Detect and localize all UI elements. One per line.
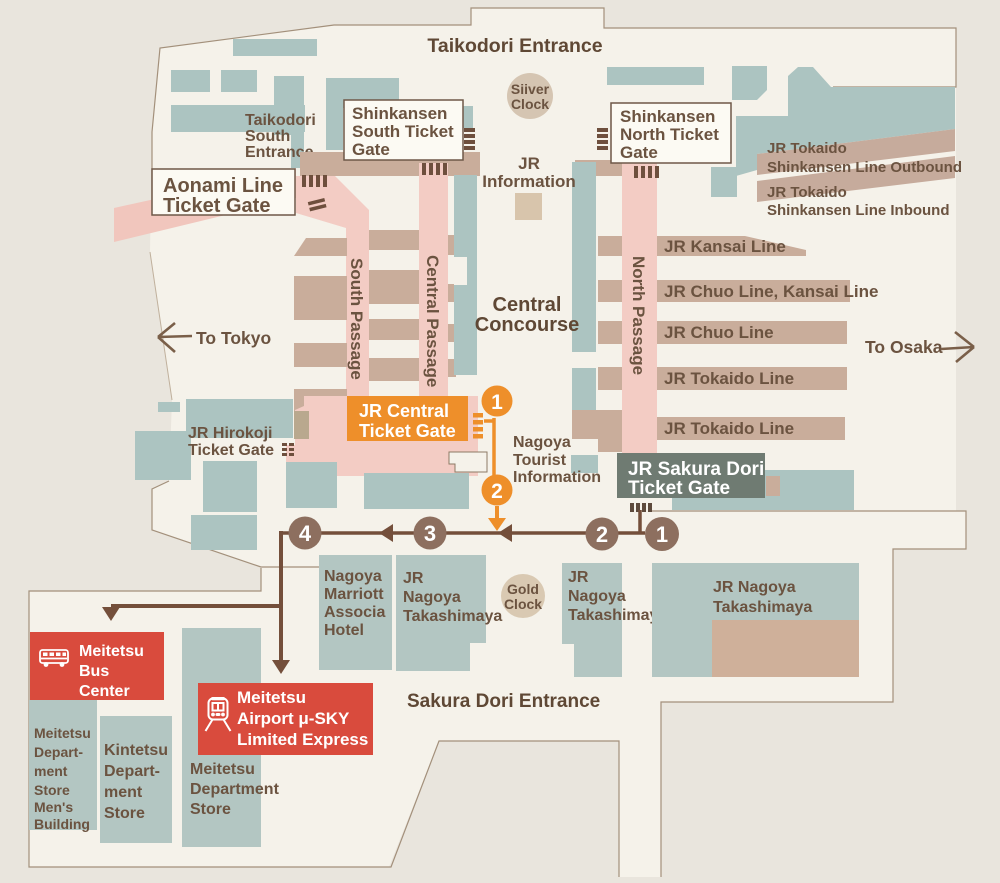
svg-text:Hotel: Hotel [324,622,364,639]
svg-text:Central: Central [493,294,562,316]
svg-text:Store: Store [34,782,70,798]
svg-text:North Ticket: North Ticket [620,125,719,144]
svg-text:Ticket Gate: Ticket Gate [628,478,730,499]
svg-text:Limited Express: Limited Express [237,730,368,749]
svg-text:Shinkansen: Shinkansen [352,104,447,123]
svg-text:Gold: Gold [507,581,539,597]
svg-text:Shinkansen Line Inbound: Shinkansen Line Inbound [767,202,950,219]
svg-text:JR Tokaido: JR Tokaido [767,184,847,201]
svg-text:Central Passage: Central Passage [423,255,442,387]
svg-text:Gate: Gate [352,140,390,159]
svg-text:Information: Information [513,469,601,486]
svg-text:Airport μ-SKY: Airport μ-SKY [237,709,350,728]
svg-text:JR Tokaido: JR Tokaido [767,140,847,157]
svg-text:Bus: Bus [79,663,109,680]
svg-text:JR: JR [403,570,424,587]
svg-text:Ticket Gate: Ticket Gate [163,195,270,217]
svg-text:Center: Center [79,683,130,700]
svg-text:JR Central: JR Central [359,401,449,421]
svg-text:JR Tokaido Line: JR Tokaido Line [664,419,794,438]
svg-text:Shinkansen Line Outbound: Shinkansen Line Outbound [767,159,962,176]
svg-text:JR Nagoya: JR Nagoya [713,579,796,596]
svg-text:Men's: Men's [34,799,73,815]
svg-text:Sakura Dori Entrance: Sakura Dori Entrance [407,691,600,712]
svg-text:Siiver: Siiver [511,81,550,97]
svg-text:Tourist: Tourist [513,452,567,469]
svg-text:Nagoya: Nagoya [513,434,571,451]
svg-text:Meitetsu: Meitetsu [237,688,306,707]
svg-text:JR Chuo Line: JR Chuo Line [664,323,774,342]
svg-text:To Osaka: To Osaka [865,337,943,357]
svg-text:Takashimaya: Takashimaya [403,608,502,625]
svg-text:2: 2 [491,480,503,503]
svg-text:ment: ment [34,763,68,779]
svg-text:Department: Department [190,781,280,798]
svg-text:1: 1 [491,391,503,414]
svg-text:To Tokyo: To Tokyo [196,328,271,348]
svg-text:Associa: Associa [324,604,385,621]
svg-text:Nagoya: Nagoya [324,568,382,585]
svg-text:Ticket Gate: Ticket Gate [188,442,274,459]
svg-text:Ticket Gate: Ticket Gate [359,421,456,441]
svg-text:South: South [245,128,290,145]
svg-text:JR Tokaido Line: JR Tokaido Line [664,369,794,388]
svg-text:Nagoya: Nagoya [568,588,626,605]
svg-text:Shinkansen: Shinkansen [620,107,715,126]
svg-text:North Passage: North Passage [629,256,648,375]
svg-text:JR: JR [518,154,540,173]
svg-text:Clock: Clock [504,596,542,612]
svg-text:JR Sakura Dori: JR Sakura Dori [628,459,764,480]
svg-text:Taikodori Entrance: Taikodori Entrance [427,35,602,57]
svg-text:South Passage: South Passage [347,258,366,380]
svg-text:Store: Store [190,801,231,818]
svg-text:Depart-: Depart- [104,763,160,780]
svg-text:JR Kansai Line: JR Kansai Line [664,237,786,256]
svg-text:Building: Building [34,816,90,832]
svg-text:Gate: Gate [620,143,658,162]
svg-text:Information: Information [482,172,576,191]
svg-text:Clock: Clock [511,96,549,112]
svg-text:3: 3 [424,521,436,546]
svg-text:Depart-: Depart- [34,744,83,760]
svg-text:South Ticket: South Ticket [352,122,454,141]
svg-text:Marriott: Marriott [324,586,384,603]
svg-text:Nagoya: Nagoya [403,589,461,606]
svg-text:Store: Store [104,805,145,822]
svg-text:4: 4 [299,521,312,546]
svg-text:1: 1 [656,522,668,547]
svg-text:Meitetsu: Meitetsu [34,725,91,741]
svg-text:Meitetsu: Meitetsu [190,761,255,778]
svg-text:JR: JR [568,569,589,586]
svg-text:JR Chuo Line, Kansai Line: JR Chuo Line, Kansai Line [664,282,878,301]
svg-text:Takashimaya: Takashimaya [713,599,812,616]
svg-text:2: 2 [596,522,608,547]
svg-text:Concourse: Concourse [475,314,579,336]
svg-text:JR Hirokoji: JR Hirokoji [188,425,272,442]
svg-text:Kintetsu: Kintetsu [104,742,168,759]
svg-text:Meitetsu: Meitetsu [79,643,144,660]
svg-text:Aonami Line: Aonami Line [163,175,283,197]
svg-text:ment: ment [104,784,143,801]
svg-text:Taikodori: Taikodori [245,112,316,129]
